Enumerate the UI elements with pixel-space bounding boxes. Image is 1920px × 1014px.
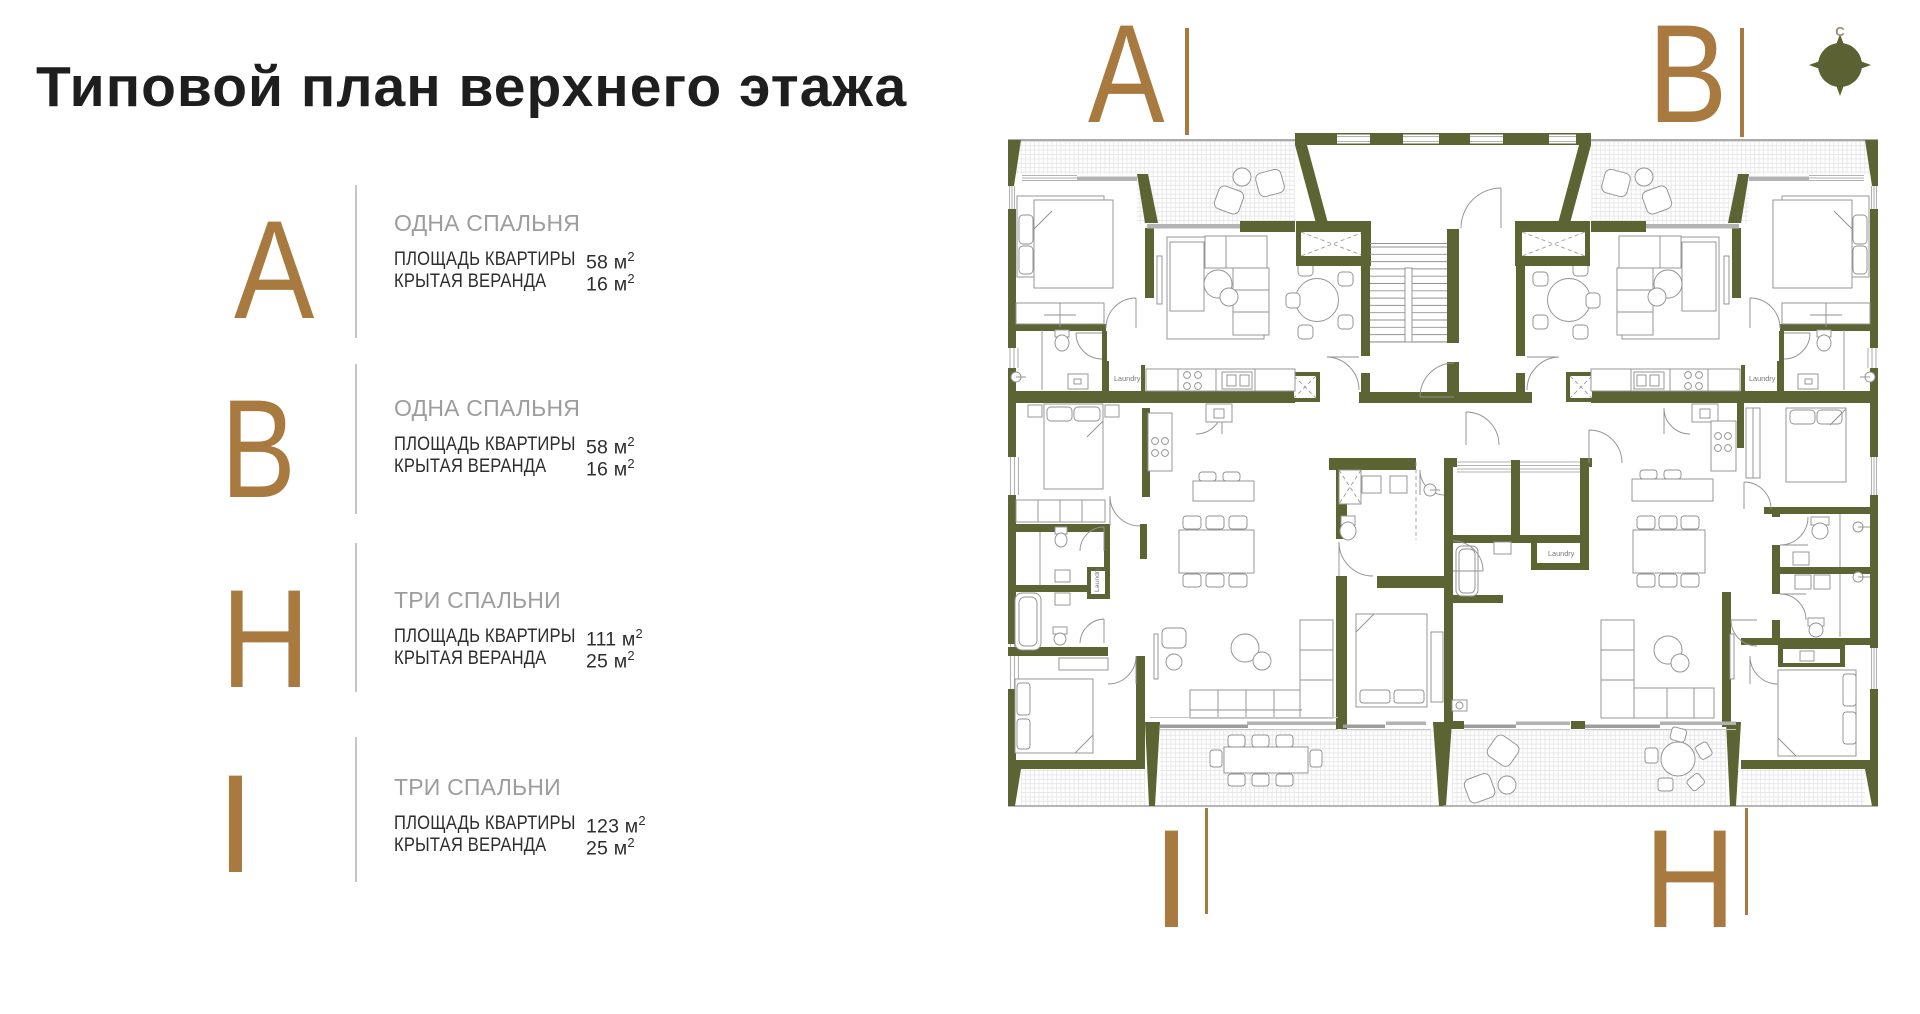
svg-text:Laundry: Laundry [1749, 374, 1776, 383]
svg-text:Laundry: Laundry [1114, 374, 1141, 383]
svg-text:С: С [1835, 24, 1845, 39]
svg-text:Laundry: Laundry [1548, 549, 1575, 558]
svg-text:Laundry: Laundry [1094, 567, 1101, 592]
